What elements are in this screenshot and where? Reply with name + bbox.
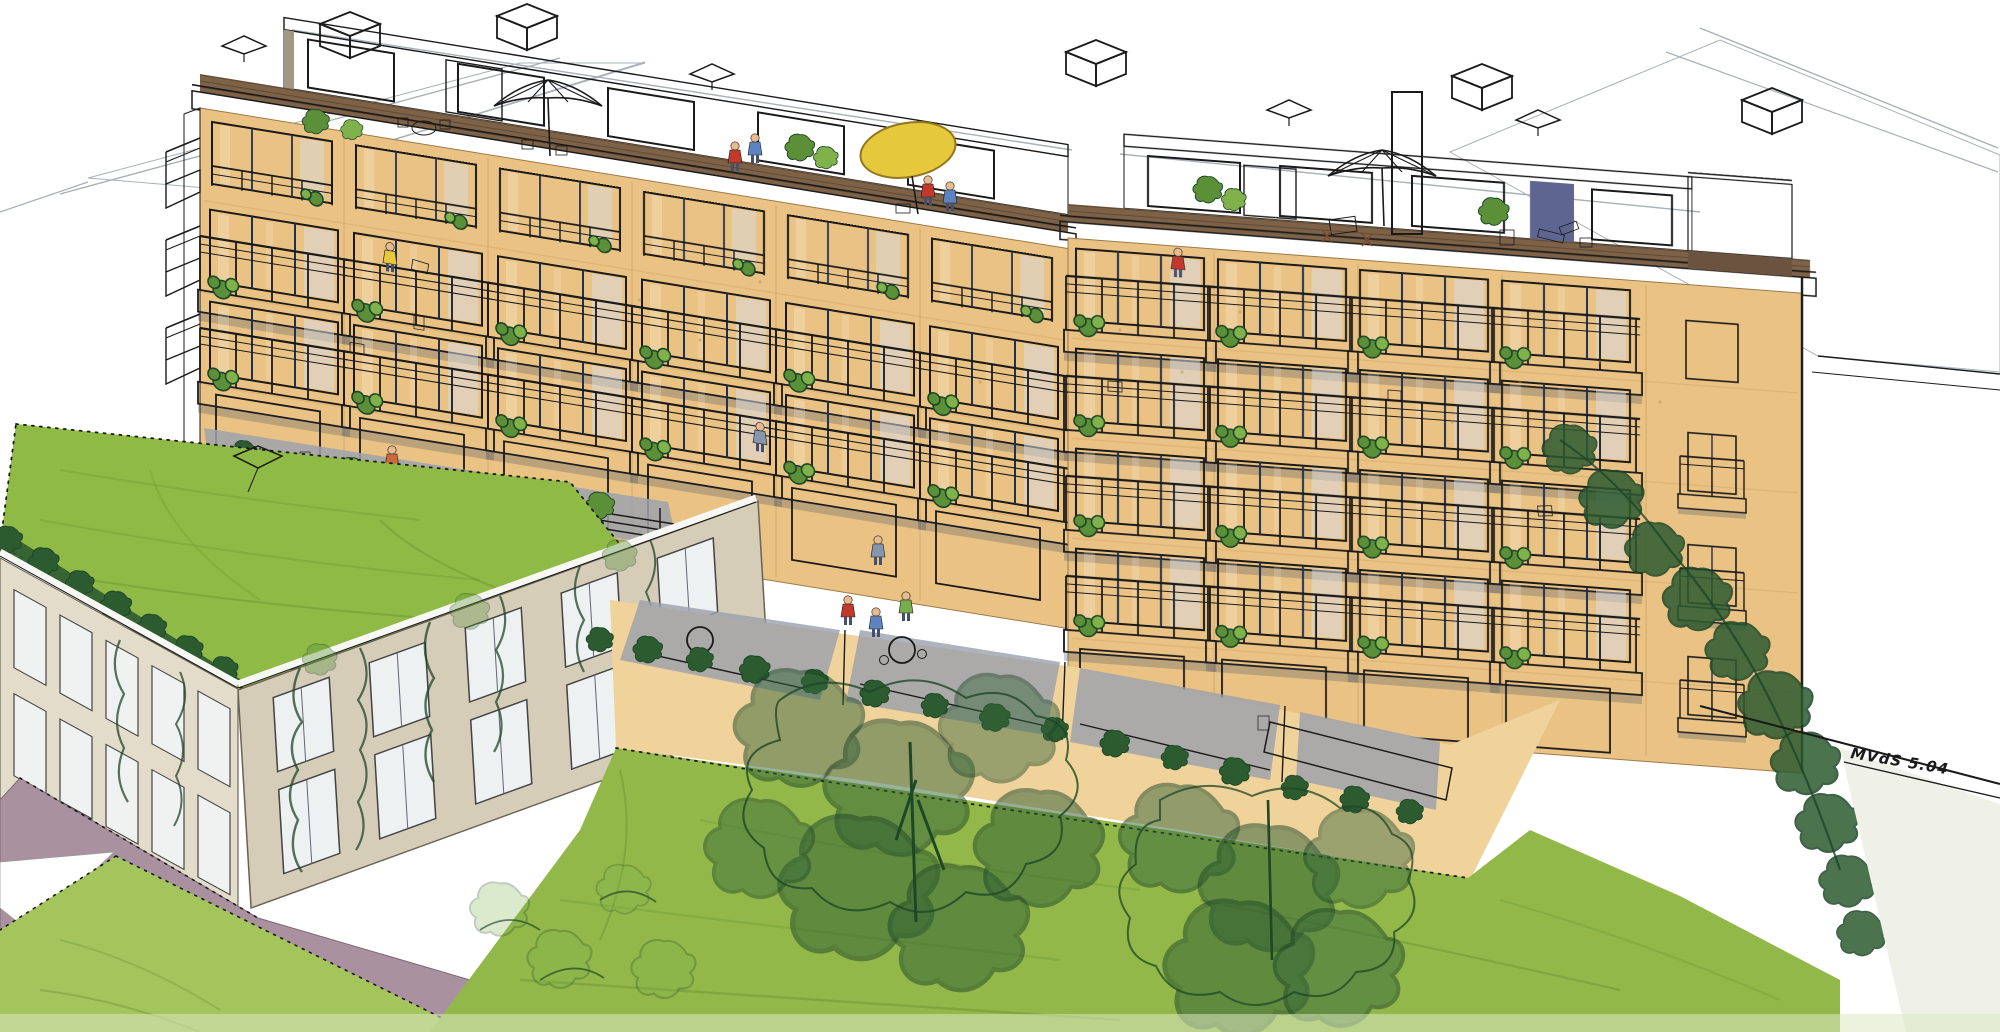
rendering-canvas: MVdS 5.04: [0, 0, 2000, 1032]
architectural-rendering: MVdS 5.04: [0, 0, 2000, 1032]
watercolor-fade: [0, 1014, 2000, 1032]
